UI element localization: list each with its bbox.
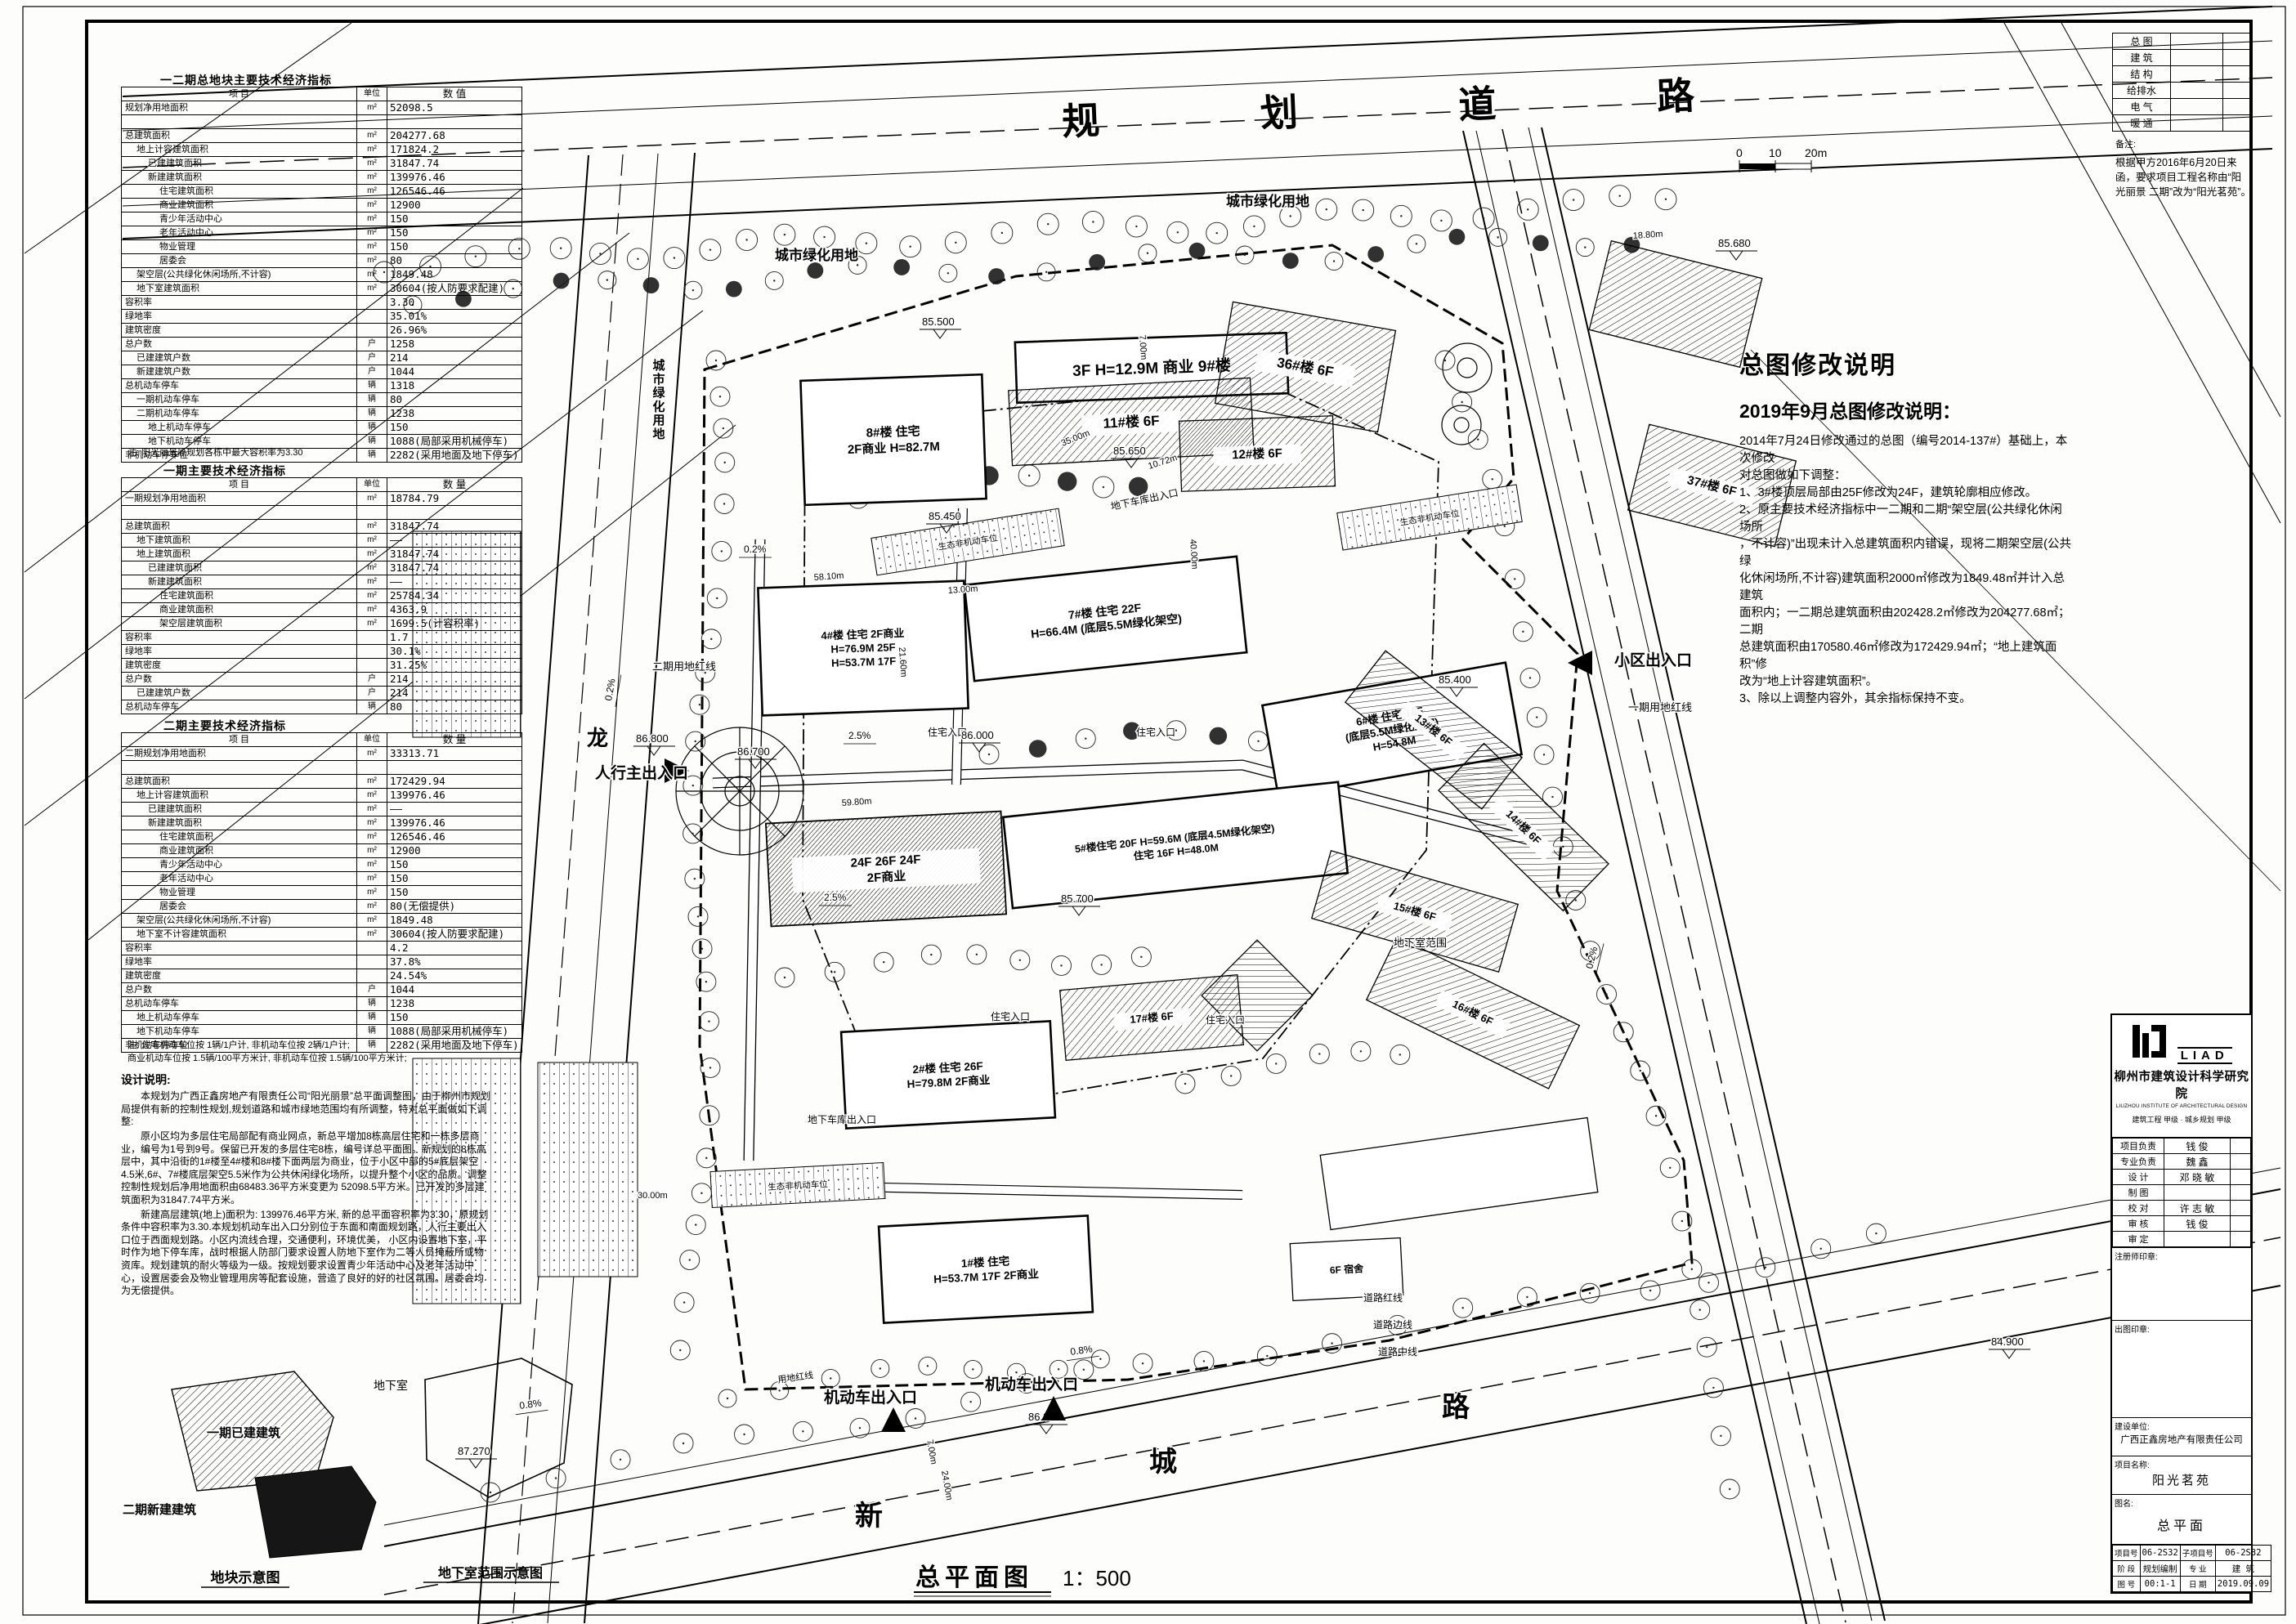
table-row: 新建建筑户数户1044 bbox=[122, 365, 522, 379]
revision-note: 总图修改说明 2019年9月总图修改说明： 2014年7月24日修改通过的总图（… bbox=[1739, 345, 2073, 708]
scale-bar-label: 10 bbox=[1769, 146, 1782, 159]
entrance-label: 人行主出入口 bbox=[595, 763, 688, 782]
table-row: 地下机动车停车辆1088(局部采用机械停车) bbox=[122, 1025, 522, 1039]
revision-line: 面积内；一二期总建筑面积由202428.2㎡修改为204277.68㎡；二期 bbox=[1739, 605, 2073, 639]
tree-icon bbox=[1497, 236, 1498, 238]
design-notes: 设计说明: 本规划为广西正鑫房地产有限责任公司“阳光丽景”总平面调整图，由于柳州… bbox=[121, 1072, 490, 1300]
institute-name-cn: 柳州市建筑设计科学研究院 bbox=[2112, 1067, 2251, 1102]
plan-label: 二期用地红线 bbox=[652, 660, 716, 673]
tree-icon bbox=[1712, 1387, 1714, 1389]
table-row: 老年活动中心m²150 bbox=[122, 872, 522, 886]
new-building: 4#楼 住宅 2F商业H=76.9M 25FH=53.7M 17F bbox=[758, 581, 968, 716]
table-row: 住宅建筑面积m²126546.46 bbox=[122, 830, 522, 844]
tree-icon bbox=[1665, 199, 1667, 200]
tree-icon bbox=[1257, 740, 1259, 742]
tree-icon bbox=[830, 1377, 831, 1379]
tree-icon bbox=[927, 1365, 929, 1367]
elevation-value: 84.900 bbox=[1991, 1335, 2024, 1348]
tree-icon bbox=[1001, 232, 1003, 234]
scale-bar-segment bbox=[1739, 163, 1775, 169]
table-row: 二期规划净用地面积m²33313.71 bbox=[122, 747, 522, 761]
tree-icon bbox=[1584, 246, 1586, 248]
scale-bar-label: 0 bbox=[1736, 146, 1743, 159]
building-label: 1#楼 住宅 bbox=[961, 1254, 1011, 1269]
tree-icon bbox=[699, 704, 700, 705]
tree-icon bbox=[823, 236, 825, 238]
table-row: 青少年活动中心m²150 bbox=[122, 213, 522, 226]
tree-icon bbox=[1216, 232, 1218, 234]
tree-icon bbox=[1253, 226, 1255, 227]
tree-icon bbox=[1543, 754, 1545, 755]
tree-icon bbox=[802, 1430, 803, 1432]
tree-icon bbox=[1729, 1488, 1730, 1490]
elevation-mark-icon bbox=[1730, 251, 1743, 260]
tree-icon bbox=[1060, 964, 1062, 966]
dimension-label: 24.00m bbox=[939, 1470, 954, 1501]
tree-icon bbox=[1175, 729, 1177, 731]
tree-icon bbox=[1100, 964, 1102, 965]
tree-icon bbox=[694, 878, 696, 879]
plan-label: 城 bbox=[1149, 1447, 1177, 1478]
tree-icon bbox=[723, 427, 724, 429]
client-name: 广西正鑫房地产有限责任公司 bbox=[2112, 1433, 2251, 1446]
tree-icon bbox=[1483, 217, 1484, 219]
table-overall-title: 一二期总地块主要技术经济指标 bbox=[160, 72, 332, 88]
tree-icon bbox=[715, 360, 717, 361]
tree-icon bbox=[709, 248, 711, 250]
tree-icon bbox=[1142, 1362, 1144, 1364]
legend-phase1-label: 一期已建建筑 bbox=[207, 1425, 280, 1440]
revision-line: 2014年7月24日修改通过的总图（编号2014-137#）基础上，本次修改 bbox=[1739, 433, 2073, 468]
elevation-value: 85.700 bbox=[1061, 893, 1094, 905]
design-paragraph: 本规划为广西正鑫房地产有限责任公司“阳光丽景”总平面调整图，由于柳州市规划局提供… bbox=[121, 1090, 490, 1129]
liad-logo-text: LIAD bbox=[2177, 1047, 2232, 1064]
elevation-value: 86.000 bbox=[961, 729, 994, 741]
tree-icon bbox=[1203, 1360, 1205, 1362]
table-row: 规划净用地面积m²52098.5 bbox=[122, 101, 522, 115]
tree-icon bbox=[1765, 1266, 1766, 1268]
personnel-row: 审 定 bbox=[2113, 1232, 2251, 1247]
table-row bbox=[122, 761, 522, 775]
tree-icon bbox=[727, 1398, 728, 1399]
tree-icon bbox=[1669, 1167, 1671, 1169]
discipline-row: 总 图 bbox=[2113, 34, 2251, 50]
personnel-row: 专业负责魏 鑫 bbox=[2113, 1154, 2251, 1170]
design-paragraph: 原小区均为多层住宅局部配有商业网点，新总平增加8栋高层住宅和一栋多层商业，编号为… bbox=[121, 1130, 490, 1207]
number-grid-row: 图 号00:1-1日 期2019.09.09 bbox=[2113, 1577, 2271, 1592]
tree-icon bbox=[1266, 1355, 1268, 1357]
revision-line: ，不计容)”出现未计入总建筑面积内错误，现将二期架空层(公共绿 bbox=[1739, 536, 2073, 570]
tree-icon bbox=[1504, 525, 1506, 526]
table-row: 物业管理m²150 bbox=[122, 240, 522, 254]
new-building: 1#楼 住宅H=53.7M 17F 2F商业 bbox=[879, 1215, 1093, 1322]
tree-icon bbox=[620, 1459, 621, 1461]
tree-icon bbox=[778, 1389, 780, 1391]
plan-label: 新 bbox=[855, 1501, 883, 1532]
revision-line: 1、3#楼顶层局部由25F修改为24F，建筑轮廓相应修改。 bbox=[1739, 485, 2073, 502]
tree-icon bbox=[553, 273, 570, 289]
tree-icon bbox=[1135, 226, 1137, 227]
tree-icon bbox=[1522, 631, 1524, 633]
tree-icon bbox=[683, 1443, 684, 1444]
table-row: 住宅建筑面积m²126546.46 bbox=[122, 185, 522, 199]
table-row: 居委会m²80 bbox=[122, 254, 522, 268]
dimension-label: 30.00m bbox=[638, 1191, 668, 1201]
tree-icon bbox=[1282, 253, 1299, 269]
dimension-label: 18.80m bbox=[1632, 229, 1663, 241]
tree-icon bbox=[1367, 246, 1384, 262]
tree-icon bbox=[708, 1020, 709, 1022]
table-phase2-notes: 注: 住宅机动车位按 1辆/1户计, 非机动车位按 2辆/1户计;商业机动车位按… bbox=[128, 1038, 407, 1064]
scale-bar-segment bbox=[1775, 163, 1811, 169]
tree-icon bbox=[1619, 195, 1621, 196]
project-label: 项目名称: bbox=[2115, 1458, 2150, 1470]
tree-icon bbox=[705, 981, 707, 982]
number-grid-row: 项目号06-2S32子项目号06-2S32 bbox=[2113, 1546, 2271, 1561]
table-row: 新建建筑面积m²—— bbox=[122, 575, 522, 589]
table-overall: 项 目单位数 值规划净用地面积m²52098.5 总建筑面积m²204277.6… bbox=[121, 87, 522, 463]
tree-icon bbox=[1461, 401, 1462, 403]
tree-icon bbox=[606, 279, 608, 280]
plan-label: 龙 bbox=[587, 726, 608, 750]
tree-icon bbox=[1362, 209, 1363, 211]
plan-caption: 总平面图 1：500 bbox=[914, 1564, 1131, 1596]
dimension-label: 58.10m bbox=[813, 570, 844, 583]
tree-icon bbox=[1331, 1342, 1332, 1344]
issue-stamp-area: 出图印章: bbox=[2112, 1321, 2251, 1418]
tree-icon bbox=[700, 1192, 702, 1194]
tree-icon bbox=[972, 1368, 973, 1370]
tree-icon bbox=[1477, 438, 1479, 440]
tree-icon bbox=[1230, 1075, 1232, 1076]
table-row: 青少年活动中心m²150 bbox=[122, 858, 522, 872]
tree-icon bbox=[599, 253, 601, 254]
plan-label: 住宅入口 bbox=[1136, 726, 1175, 738]
elevation-mark-icon bbox=[933, 329, 947, 338]
tree-icon bbox=[692, 289, 694, 291]
revision-line: 2、原主要技术经济指标中一二期和二期“架空层(公共绿化休闲场所 bbox=[1739, 502, 2073, 536]
tree-icon bbox=[723, 503, 725, 504]
entrance-arrow-icon bbox=[1041, 1396, 1066, 1420]
drawing-name-section: 图名: 总平面 bbox=[2112, 1495, 2251, 1545]
tree-icon bbox=[834, 971, 835, 973]
legend-basement-label: 地下室 bbox=[374, 1379, 408, 1392]
table-row: 建筑密度26.96% bbox=[122, 324, 522, 338]
table-phase2: 项 目单位数 量二期规划净用地面积m²33313.71 总建筑面积m²17242… bbox=[121, 732, 522, 1053]
tree-icon bbox=[1649, 1290, 1651, 1291]
table-row: 容积率1.7 bbox=[122, 631, 522, 645]
tree-icon bbox=[1536, 716, 1537, 718]
elevation-value: 85.450 bbox=[929, 510, 961, 522]
new-building: 6F 宿舍 bbox=[1290, 1238, 1403, 1301]
table-row bbox=[122, 506, 522, 520]
table-row: 架空层(公共绿化休闲场所,不计容)m²1849.48 bbox=[122, 914, 522, 928]
title-block: LIAD 柳州市建筑设计科学研究院 LIUZHOU INSTITUTE OF A… bbox=[2110, 1013, 2253, 1594]
tree-icon bbox=[1210, 727, 1228, 745]
tree-icon bbox=[709, 1115, 710, 1116]
personnel-row: 制 图 bbox=[2113, 1185, 2251, 1201]
tree-icon bbox=[1019, 960, 1021, 961]
table-row: 架空层建筑面积m²1699.5(计容积率) bbox=[122, 617, 522, 631]
building-label: H=53.7M 17F bbox=[831, 655, 897, 669]
table-row: 地上机动车停车辆150 bbox=[122, 1011, 522, 1025]
tree-icon bbox=[947, 272, 949, 274]
tree-icon bbox=[1089, 254, 1105, 271]
table-row: 居委会m²80(无偿提供) bbox=[122, 900, 522, 914]
tree-icon bbox=[1290, 215, 1291, 217]
table-row: 已建建筑户数户214 bbox=[122, 687, 522, 700]
personnel-row: 审 核钱 俊 bbox=[2113, 1216, 2251, 1232]
institute-name-en: LIUZHOU INSTITUTE OF ARCHITECTURAL DESIG… bbox=[2112, 1103, 2251, 1109]
table-row: 物业管理m²150 bbox=[122, 886, 522, 900]
tree-icon bbox=[710, 638, 712, 640]
building-label: 6F 宿舍 bbox=[1329, 1262, 1364, 1276]
slope-label: 0.8% bbox=[1069, 1343, 1093, 1358]
elevation-value: 87.270 bbox=[458, 1445, 490, 1457]
new-building: 7#楼 住宅 22FH=66.4M (底层5.5M绿化架空) bbox=[964, 557, 1246, 681]
table-row: 建筑密度24.54% bbox=[122, 969, 522, 983]
personnel-row: 项目负责钱 俊 bbox=[2113, 1139, 2251, 1154]
table-row: 已建建筑面积m²31847.74 bbox=[122, 157, 522, 171]
elevation-value: 85.400 bbox=[1439, 673, 1471, 686]
tree-icon bbox=[930, 954, 932, 955]
dimension-label: 13.00m bbox=[947, 584, 978, 596]
tree-icon bbox=[1416, 243, 1417, 244]
eco-parking-strip: 生态非机动车位 bbox=[1337, 485, 1522, 550]
project-section: 项目名称: 阳光茗苑 bbox=[2112, 1456, 2251, 1495]
tree-icon bbox=[1699, 1309, 1700, 1310]
legend-basement-caption: 地下室范围示意图 bbox=[438, 1565, 543, 1581]
tree-icon bbox=[709, 1067, 711, 1068]
tree-icon bbox=[1092, 221, 1094, 222]
table-row: 总机动车停车辆1318 bbox=[122, 379, 522, 393]
tree-icon bbox=[716, 597, 718, 599]
eco-parking-strip: 生态非机动车位 bbox=[710, 1162, 885, 1207]
slope-label: 0.2% bbox=[744, 544, 767, 555]
revision-line: 总建筑面积由170580.46㎡修改为172429.94㎡；“地上建筑面积”修 bbox=[1739, 639, 2073, 673]
table-row: 商业建筑面积m²4363.9 bbox=[122, 603, 522, 617]
table-header-row: 项 目单位数 量 bbox=[122, 733, 522, 747]
discipline-row: 电 气 bbox=[2113, 99, 2251, 115]
dimension-label: 21.60m bbox=[897, 646, 909, 677]
building-label: H=76.9M 25F bbox=[830, 641, 896, 655]
tree-icon bbox=[1444, 360, 1446, 361]
table-row: 地上计容建筑面积m²171824.2 bbox=[122, 143, 522, 157]
elevation-mark-icon bbox=[469, 1459, 482, 1468]
table-row: 地上机动车停车辆150 bbox=[122, 421, 522, 435]
svg-text:总平面图: 总平面图 bbox=[915, 1564, 1033, 1591]
table-row: 商业建筑面积m²12900 bbox=[122, 844, 522, 858]
new-building: 2#楼 住宅 26FH=79.8M 2F商业 bbox=[841, 1021, 1055, 1128]
remark-label: 备注: bbox=[2115, 139, 2251, 152]
tree-icon bbox=[724, 462, 726, 463]
table-row: 老年活动中心m²150 bbox=[122, 226, 522, 240]
tree-icon bbox=[719, 396, 721, 397]
discipline-row: 建 筑 bbox=[2113, 50, 2251, 66]
tree-icon bbox=[773, 280, 775, 281]
table-header-row: 项 目单位数 值 bbox=[122, 87, 522, 101]
tree-icon bbox=[883, 961, 884, 963]
tree-icon bbox=[1533, 235, 1549, 251]
legend-diagrams: 一期已建建筑 二期新建建筑 地下室 地块示意图 地下室范围示意图 bbox=[123, 1358, 572, 1587]
tree-icon bbox=[1360, 1050, 1362, 1052]
tree-icon bbox=[1244, 254, 1246, 256]
tree-icon bbox=[697, 915, 699, 917]
tree-icon bbox=[1400, 215, 1402, 217]
tree-icon bbox=[857, 264, 858, 266]
tree-icon bbox=[1720, 1435, 1721, 1437]
plan-label: 路 bbox=[1442, 1392, 1470, 1423]
remark-text: 根据甲方2016年6月20日来函，要求项目工程名称由“阳光丽景 二期”改为“阳光… bbox=[2115, 155, 2251, 199]
tree-icon bbox=[1058, 472, 1076, 490]
tree-icon bbox=[1575, 899, 1577, 901]
table-row: 总建筑面积m²31847.74 bbox=[122, 520, 522, 534]
tree-icon bbox=[1399, 1054, 1401, 1055]
tree-icon bbox=[915, 1417, 916, 1419]
tree-icon bbox=[726, 281, 742, 298]
plan-label: 城市绿化用地 bbox=[1226, 193, 1309, 209]
tree-icon bbox=[1275, 1063, 1277, 1064]
tree-icon bbox=[859, 1427, 861, 1429]
revision-line: 改为“地上计容建筑面积”。 bbox=[1739, 673, 2073, 691]
table-row: 一期规划净用地面积m²18784.79 bbox=[122, 492, 522, 506]
building-label: 8#楼 住宅 bbox=[866, 423, 920, 440]
tree-icon bbox=[745, 239, 747, 240]
tree-icon bbox=[976, 954, 978, 955]
institute-grade: 建筑工程 甲级 · 城乡规划 甲级 bbox=[2112, 1114, 2251, 1125]
tree-icon bbox=[1318, 1053, 1320, 1054]
tree-icon bbox=[560, 248, 562, 249]
tree-icon bbox=[1015, 1371, 1017, 1373]
tree-icon bbox=[721, 550, 723, 552]
tree-icon bbox=[705, 1157, 707, 1159]
existing-building: 12#楼 6F bbox=[1179, 416, 1336, 492]
entrance-arrow-icon bbox=[1568, 651, 1592, 675]
tree-icon bbox=[1681, 1220, 1683, 1222]
tree-icon bbox=[683, 1301, 685, 1303]
table-row: 绿地率35.01% bbox=[122, 310, 522, 324]
elevation-value: 85.500 bbox=[922, 315, 955, 328]
tree-icon bbox=[1333, 260, 1335, 262]
tree-icon bbox=[679, 1349, 681, 1351]
tree-icon bbox=[1514, 578, 1515, 579]
tree-icon bbox=[1047, 223, 1049, 225]
tree-icon bbox=[866, 242, 867, 244]
new-building: 8#楼 住宅2F商业 H=82.7M bbox=[800, 374, 986, 505]
tree-icon bbox=[1189, 243, 1206, 259]
table-note: 注: 住宅机动车位按 1辆/1户计, 非机动车位按 2辆/1户计; bbox=[128, 1038, 407, 1051]
tree-icon bbox=[1147, 253, 1148, 254]
tree-icon bbox=[637, 258, 638, 260]
tree-icon bbox=[1099, 1358, 1101, 1360]
remark-block: 备注: 根据甲方2016年6月20日来函，要求项目工程名称由“阳光丽景 二期”改… bbox=[2115, 139, 2251, 199]
tree-icon bbox=[490, 1492, 491, 1493]
revision-title: 总图修改说明 bbox=[1739, 345, 2073, 381]
building-label: 12#楼 6F bbox=[1232, 445, 1282, 462]
discipline-row: 结 构 bbox=[2113, 66, 2251, 83]
tree-icon bbox=[1103, 486, 1104, 488]
tree-icon bbox=[1526, 1296, 1528, 1298]
entrance-label: 小区出入口 bbox=[1614, 651, 1692, 669]
revision-subtitle: 2019年9月总图修改说明： bbox=[1739, 396, 2073, 423]
table-phase1-title: 一期主要技术经济指标 bbox=[163, 463, 286, 479]
tree-icon bbox=[689, 1259, 691, 1260]
building-label: 2F商业 bbox=[866, 869, 906, 885]
table-row: 总户数户214 bbox=[122, 673, 522, 687]
tree-icon bbox=[701, 948, 703, 950]
plan-label: 城市绿化用地 bbox=[652, 358, 665, 441]
table-row: 架空层(公共绿化休闲场所,不计容)m²1849.48 bbox=[122, 268, 522, 282]
tree-icon bbox=[1058, 1368, 1059, 1370]
dimension-label: 40.00m bbox=[1188, 539, 1200, 569]
plan-label: 住宅入口 bbox=[1206, 1013, 1245, 1026]
discipline-row: 暖 通 bbox=[2113, 115, 2251, 132]
tree-icon bbox=[743, 1434, 745, 1435]
table-row: 总机动车停车辆1238 bbox=[122, 997, 522, 1011]
table-row bbox=[122, 115, 522, 129]
tree-icon bbox=[1083, 1369, 1085, 1371]
slope-label: 2.5% bbox=[848, 730, 871, 741]
revision-line: 化休闲场所,不计容)建筑面积2000㎡修改为1849.48㎡并计入总建筑 bbox=[1739, 570, 2073, 605]
registrar-stamp-label: 注册师印章: bbox=[2115, 1250, 2158, 1262]
tree-icon bbox=[1045, 271, 1047, 273]
svg-text:1：500: 1：500 bbox=[1063, 1566, 1131, 1590]
tree-icon bbox=[1875, 1233, 1877, 1234]
plan-label: 道路边线 bbox=[1373, 1318, 1412, 1331]
tree-icon bbox=[1440, 220, 1442, 221]
tree-icon bbox=[1184, 1083, 1186, 1085]
tree-icon bbox=[694, 740, 696, 742]
tree-icon bbox=[1140, 956, 1142, 958]
plan-label: 地下室范围 bbox=[1394, 937, 1447, 949]
table-row: 已建建筑户数户214 bbox=[122, 351, 522, 365]
entrance-arrow-icon bbox=[881, 1407, 906, 1432]
table-overall-note: 注: 阳光丽景原规划各栋中最大容积率为3.30 bbox=[128, 445, 303, 459]
scale-bar-label: 20m bbox=[1805, 146, 1827, 159]
table-row: 总建筑面积m²204277.68 bbox=[122, 129, 522, 143]
personnel-row: 校 对许 志 敏 bbox=[2113, 1201, 2251, 1216]
slope-label: 0.8% bbox=[518, 1397, 542, 1411]
plan-label: 住宅入口 bbox=[991, 1010, 1030, 1022]
tree-icon bbox=[1527, 208, 1528, 210]
registrar-stamp-area: 注册师印章: bbox=[2112, 1248, 2251, 1321]
tree-icon bbox=[1326, 208, 1327, 210]
tree-icon bbox=[1449, 229, 1466, 245]
table-phase2-title: 二期主要技术经济指标 bbox=[163, 718, 286, 734]
tree-icon bbox=[1640, 1070, 1641, 1071]
eco-parking-strip bbox=[538, 1063, 638, 1277]
elevation-mark-icon bbox=[1072, 906, 1085, 915]
table-row: 地上建筑面积m²31847.74 bbox=[122, 548, 522, 561]
slope-label: 2.5% bbox=[824, 892, 847, 903]
table-row: 总建筑面积m²172429.94 bbox=[122, 775, 522, 789]
tree-icon bbox=[1820, 1248, 1822, 1250]
table-row: 新建建筑面积m²139976.46 bbox=[122, 171, 522, 185]
new-building: 5#楼住宅 20F H=59.6M (底层4.5M绿化架空)住宅 16F H=4… bbox=[1003, 782, 1347, 908]
plan-label: 一期用地红线 bbox=[1628, 701, 1692, 714]
elevation-value: 86.700 bbox=[737, 745, 770, 758]
revision-line: 3、除以上调整内容外，其余指标保持不变。 bbox=[1739, 691, 2073, 708]
tree-icon bbox=[674, 257, 675, 258]
entrance-label: 机动车出入口 bbox=[824, 1388, 917, 1407]
table-header-row: 项 目单位数 量 bbox=[122, 478, 522, 492]
top-road-label: 规 划 道 路 bbox=[1061, 71, 1770, 143]
drawing-name: 总平面 bbox=[2112, 1514, 2251, 1534]
tree-icon bbox=[955, 242, 956, 244]
new-building: 24F 26F 24F2F商业 bbox=[766, 812, 1006, 927]
tree-icon bbox=[691, 833, 693, 834]
issue-stamp-label: 出图印章: bbox=[2115, 1322, 2150, 1335]
